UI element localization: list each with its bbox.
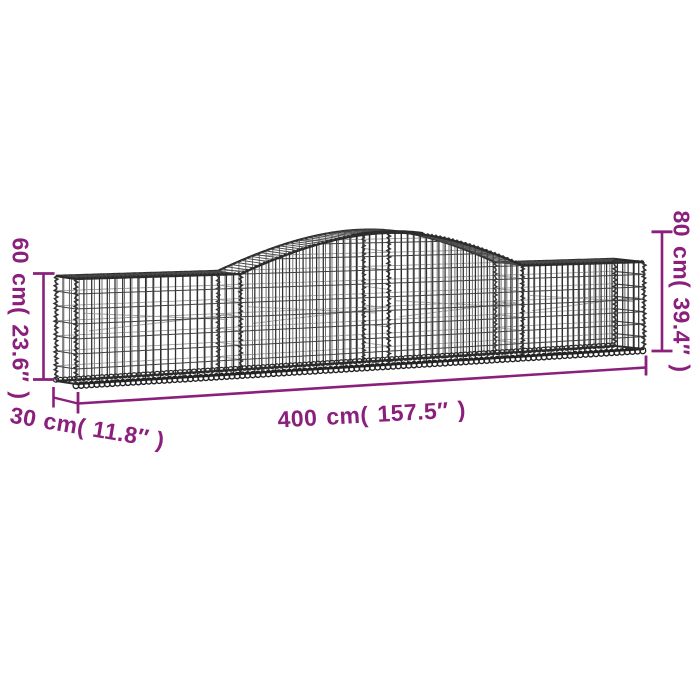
svg-text:60 cm( 23.6″ ): 60 cm( 23.6″ ) bbox=[8, 238, 34, 400]
svg-text:80 cm( 39.4″ ): 80 cm( 39.4″ ) bbox=[669, 211, 695, 373]
